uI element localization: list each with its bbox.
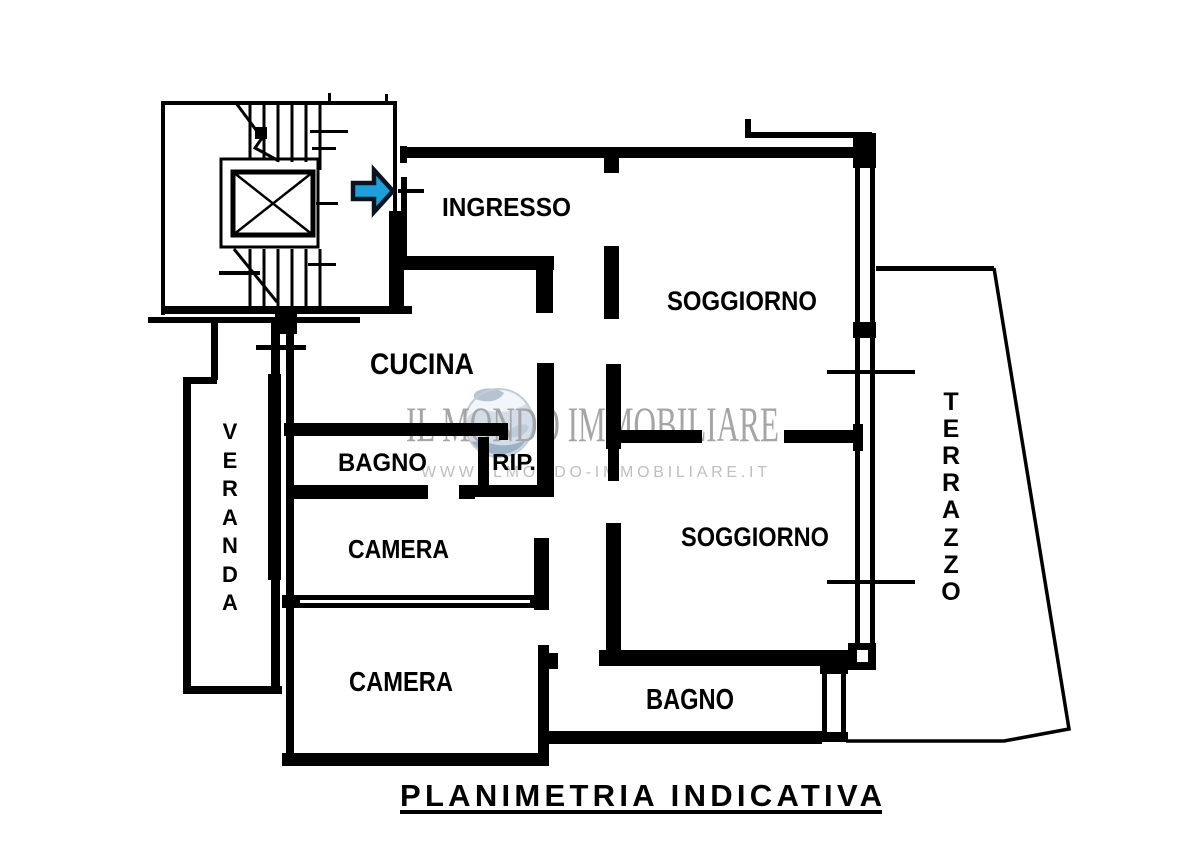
svg-text:V: V	[223, 419, 238, 444]
svg-text:Z: Z	[943, 551, 958, 579]
svg-text:SOGGIORNO: SOGGIORNO	[667, 286, 817, 316]
svg-text:CUCINA: CUCINA	[370, 348, 474, 381]
svg-text:O: O	[941, 578, 960, 606]
svg-text:BAGNO: BAGNO	[646, 684, 734, 716]
svg-text:R: R	[942, 442, 960, 470]
svg-text:R: R	[222, 476, 238, 501]
svg-text:CAMERA: CAMERA	[349, 666, 453, 697]
svg-text:RIP.: RIP.	[492, 449, 536, 475]
svg-text:N: N	[222, 533, 238, 558]
svg-text:CAMERA: CAMERA	[348, 534, 449, 564]
svg-text:R: R	[942, 469, 960, 497]
svg-text:BAGNO: BAGNO	[338, 449, 427, 477]
svg-text:A: A	[942, 496, 960, 524]
svg-text:A: A	[222, 590, 238, 615]
svg-text:INGRESSO: INGRESSO	[442, 192, 571, 222]
svg-text:A: A	[222, 505, 238, 530]
svg-text:Z: Z	[943, 524, 958, 552]
svg-text:T: T	[943, 388, 958, 416]
svg-text:E: E	[943, 415, 960, 443]
svg-text:D: D	[222, 562, 238, 587]
svg-text:SOGGIORNO: SOGGIORNO	[681, 522, 829, 552]
svg-text:E: E	[223, 448, 238, 473]
